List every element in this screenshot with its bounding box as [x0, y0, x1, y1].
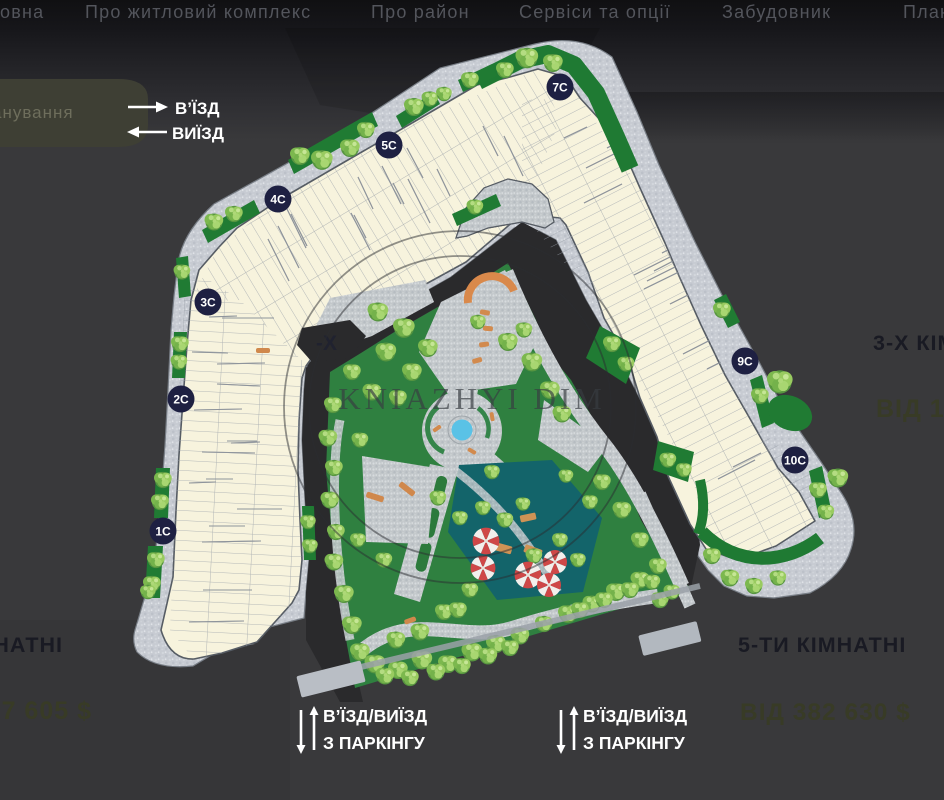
svg-text:Забудовник: Забудовник	[722, 2, 831, 22]
svg-text:1С: 1С	[155, 525, 171, 539]
svg-text:Плану: Плану	[903, 2, 944, 22]
svg-text:3С: 3С	[200, 296, 216, 310]
svg-text:КІМНАТНІ: КІМНАТНІ	[0, 633, 63, 657]
svg-text:5-ТИ КІМНАТНІ: 5-ТИ КІМНАТНІ	[738, 633, 906, 657]
svg-text:3-Х КІМНАТНІ: 3-Х КІМНАТНІ	[873, 331, 944, 355]
svg-text:2С: 2С	[173, 393, 189, 407]
svg-text:В’ЇЗД/ВИЇЗД: В’ЇЗД/ВИЇЗД	[583, 706, 688, 726]
svg-text:KNIAZHYI DIM: KNIAZHYI DIM	[338, 381, 606, 416]
svg-text:4С: 4С	[270, 193, 286, 207]
svg-text:З ПАРКІНГУ: З ПАРКІНГУ	[323, 733, 426, 753]
svg-text:10С: 10С	[784, 454, 806, 468]
svg-text:ВІД 382 630 $: ВІД 382 630 $	[740, 699, 911, 726]
svg-text:ВІД 165 363 $: ВІД 165 363 $	[876, 395, 944, 423]
svg-text:Сервіси та опції: Сервіси та опції	[519, 2, 671, 22]
svg-text:ВІД 97 605 $: ВІД 97 605 $	[0, 697, 92, 725]
svg-text:анування: анування	[0, 103, 74, 122]
svg-text:Про район: Про район	[371, 2, 470, 22]
svg-text:овна: овна	[0, 2, 44, 22]
svg-text:ВИЇЗД: ВИЇЗД	[172, 124, 224, 143]
svg-text:5С: 5С	[381, 139, 397, 153]
svg-text:В’ЇЗД/ВИЇЗД: В’ЇЗД/ВИЇЗД	[323, 706, 428, 726]
svg-text:В’ЇЗД: В’ЇЗД	[175, 99, 219, 118]
svg-text:7С: 7С	[552, 81, 568, 95]
svg-text:Про житловий комплекс: Про житловий комплекс	[85, 2, 311, 22]
svg-text:9С: 9С	[737, 355, 753, 369]
svg-text:З ПАРКІНГУ: З ПАРКІНГУ	[583, 733, 686, 753]
